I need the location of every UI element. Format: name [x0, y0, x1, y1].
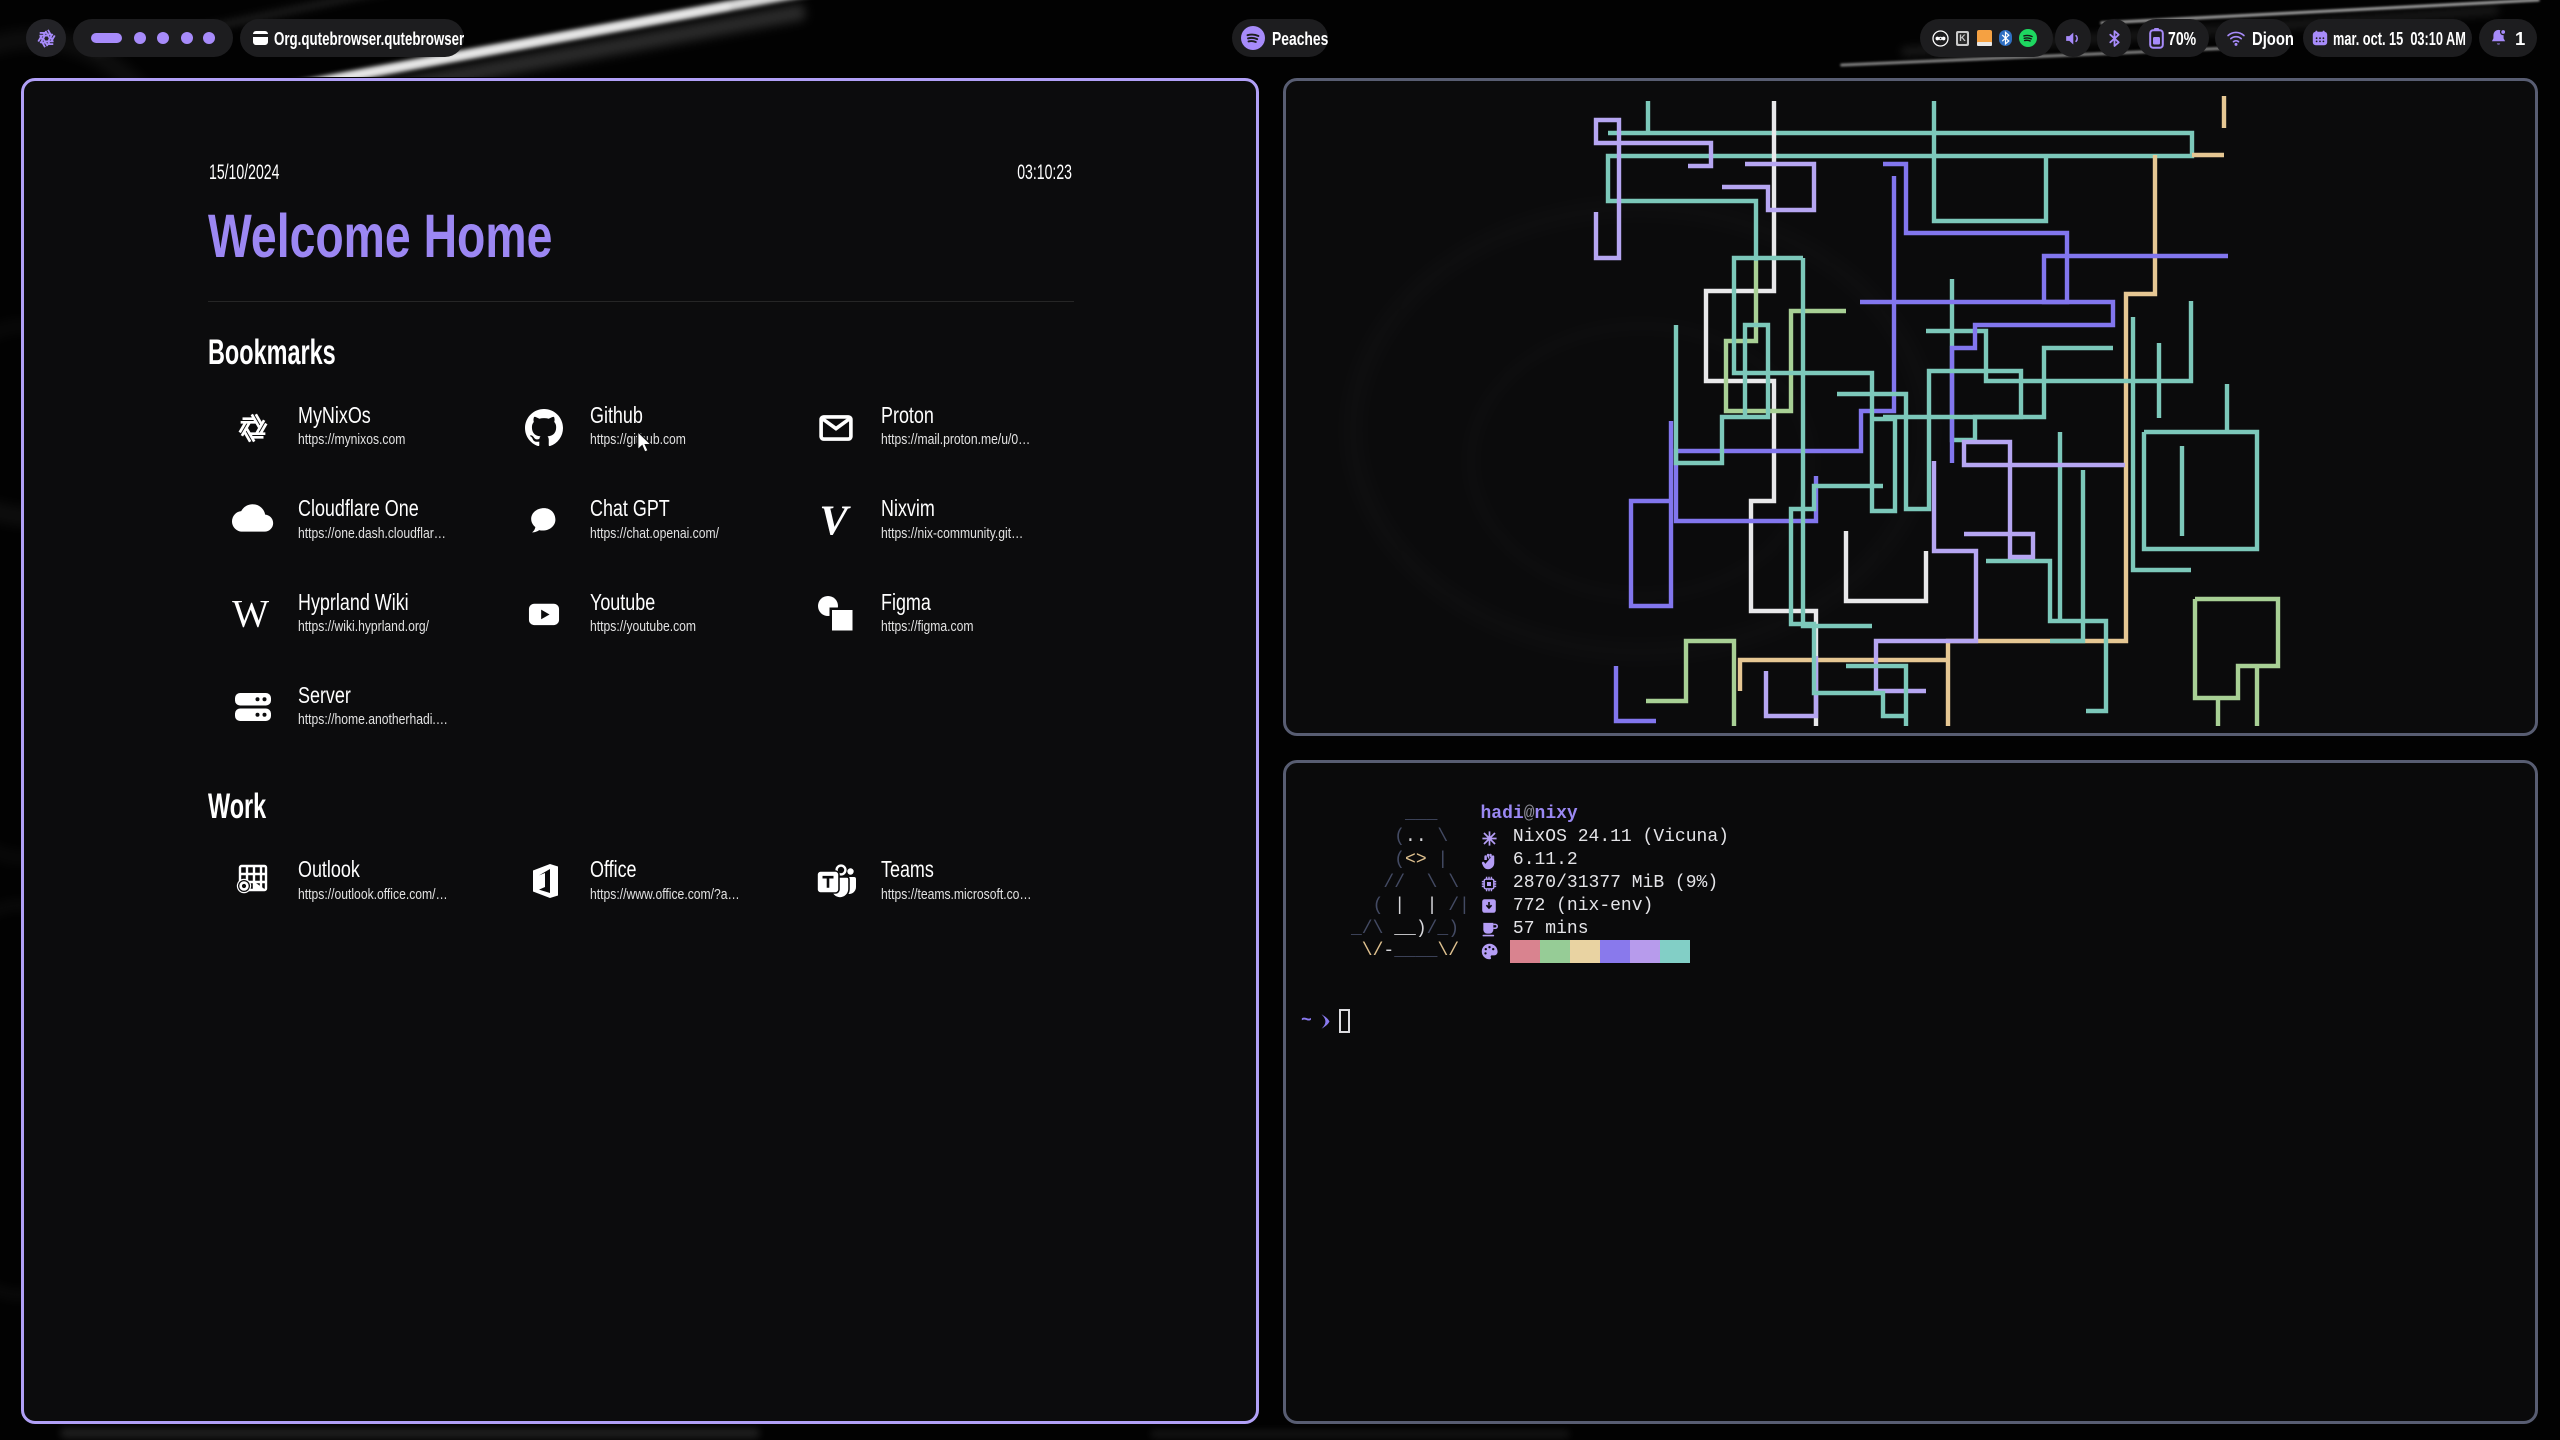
- svg-text:V: V: [819, 502, 851, 540]
- svg-text:W: W: [232, 594, 269, 634]
